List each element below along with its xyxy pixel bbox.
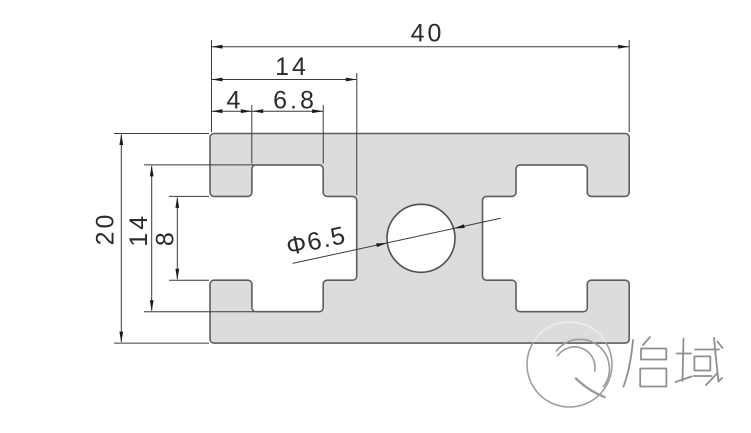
svg-text:8: 8 [152,229,180,246]
svg-text:6.8: 6.8 [273,86,317,114]
svg-text:14: 14 [275,53,309,81]
svg-text:4: 4 [227,86,244,114]
svg-text:40: 40 [411,20,445,48]
svg-text:14: 14 [125,213,153,247]
svg-text:20: 20 [92,212,120,246]
